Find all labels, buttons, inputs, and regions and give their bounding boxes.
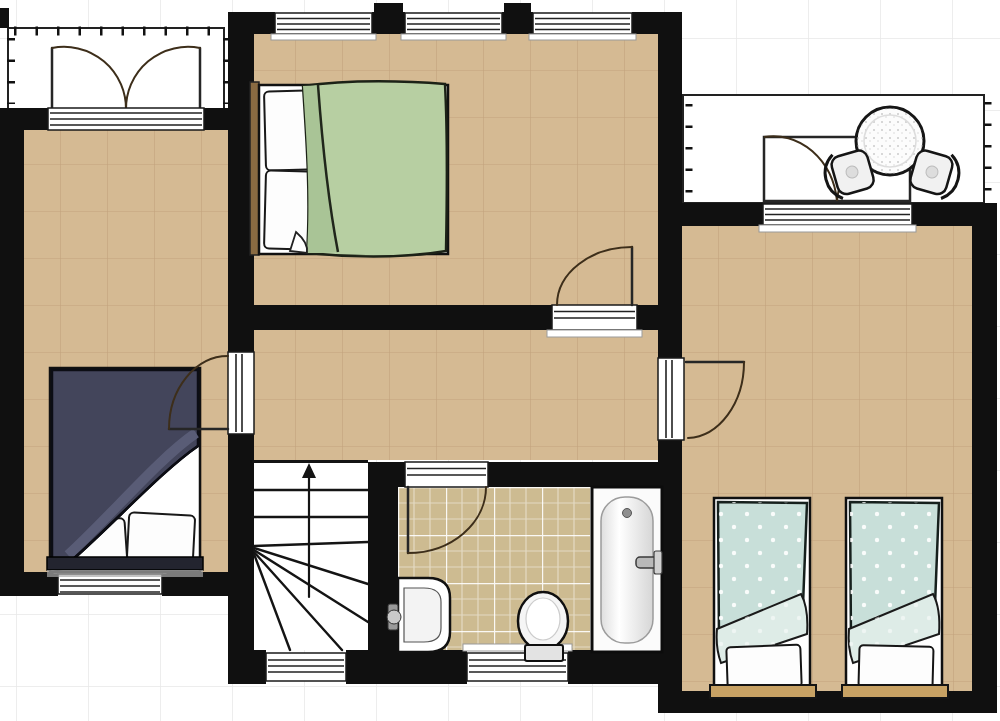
toilet-cistern [525,645,563,661]
stair-opening-edge [252,460,368,463]
wall-center-vertical-lower [228,434,254,652]
wall-south-b [346,650,467,684]
bathtub-icon [592,487,662,652]
pillow [264,170,312,249]
balconyTL-door-threshold [48,108,204,130]
balcony-floor [8,28,224,110]
wall-north-tab2 [504,3,531,13]
floor-plan-page [0,0,1000,721]
bed-single-right [842,498,948,698]
basin-faucet-knob [387,610,401,624]
doorway-bedroomT [547,305,642,337]
headboard-shadow [47,570,203,577]
wall-exterior-east [972,203,997,713]
wall-bedroomR-north-a [658,203,763,226]
toilet-icon [518,592,568,661]
window-north-1 [271,13,376,40]
bed-double-green [250,81,448,256]
footboard [710,685,816,698]
wall-north-a [232,12,275,34]
pillow [127,512,195,563]
floor-plan [0,0,1000,721]
headboard [250,82,259,255]
window-north-3 [529,13,636,40]
wall-exterior-west [0,108,24,596]
footboard [842,685,948,698]
wall-north-pier1 [372,12,405,34]
headboard [47,557,203,570]
doorway-bathroom [405,462,488,487]
tub-faucet-handle [654,551,662,574]
doorway-bedroomL [228,352,254,434]
bed-double-navy [47,368,203,577]
pillow [726,645,801,690]
wall-hall-north-a [228,305,552,330]
window-stair-south [266,653,346,681]
wall-south-c [568,650,682,684]
balconyTR-door-threshold [759,204,916,232]
tub-drain [623,509,632,518]
wall-north-tab1 [374,3,403,13]
pillow [858,645,933,689]
wall-north-pier2 [502,12,533,34]
wall-balconyTL-south-a [0,108,48,130]
wall-bath-north-b [488,462,682,487]
wall-south-a [228,650,266,684]
doorway-bedroomR [658,358,684,440]
wall-balconyTL-south-b [204,108,232,130]
wall-hall-north-b [637,305,682,330]
hallway-floor [252,330,658,460]
railing-post [0,8,9,28]
balcony-top-right [683,95,988,203]
window-north-2 [401,13,506,40]
bed-single-left [710,498,816,698]
